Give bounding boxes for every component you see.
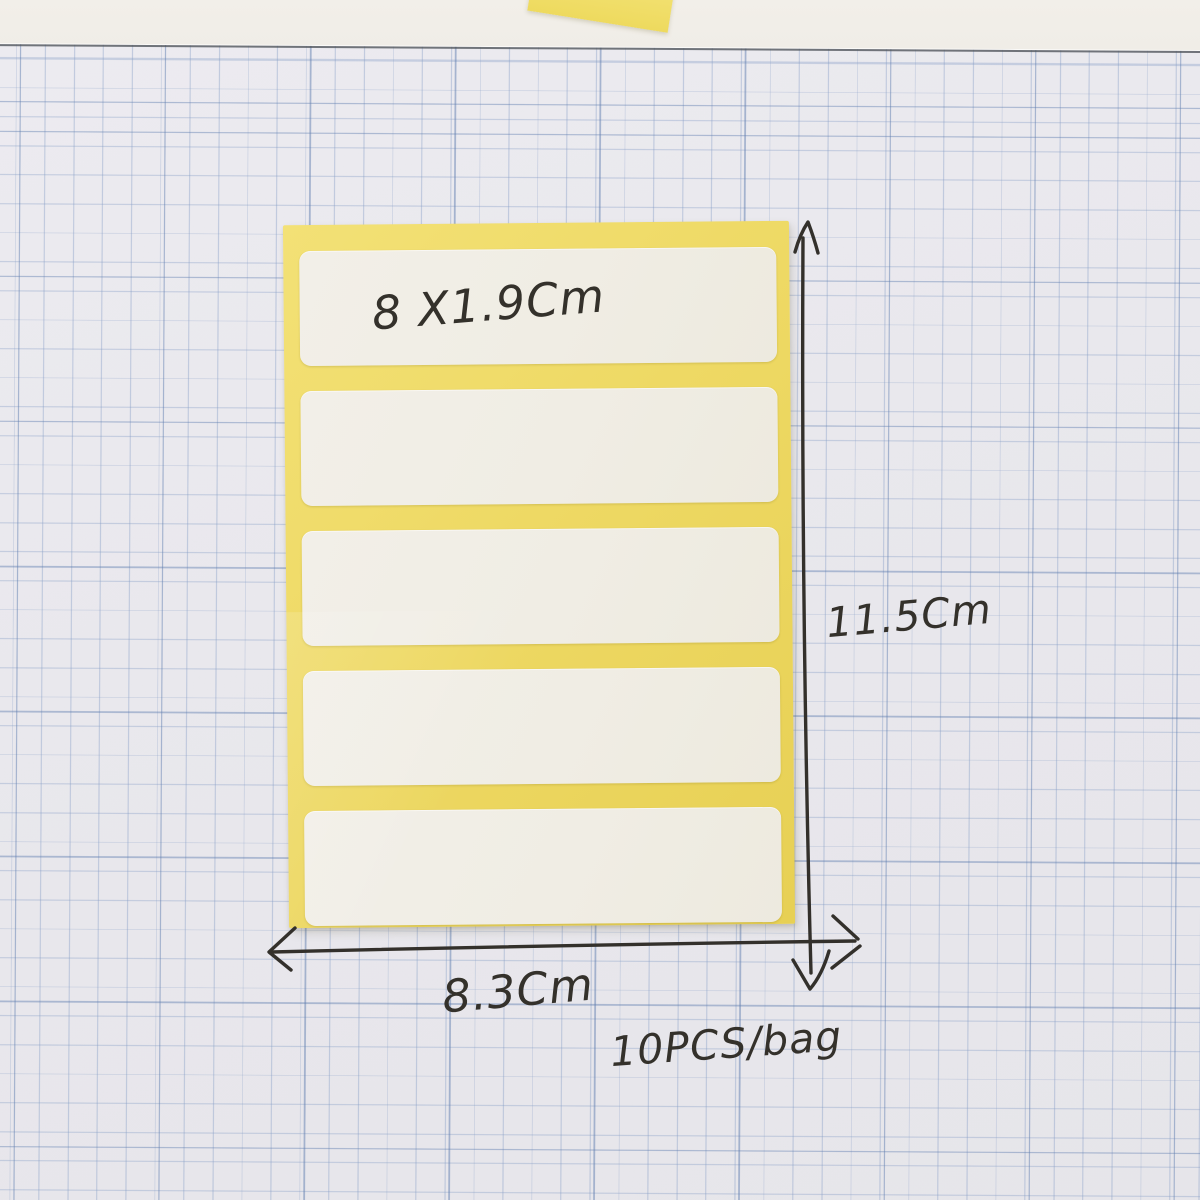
sticker-label: 8 X1.9Cm <box>299 247 777 366</box>
product-photo: 8 X1.9Cm 11.5Cm 8.3Cm 10PCS/bag <box>0 0 1200 1200</box>
sticker-label <box>300 387 778 506</box>
sticker-sheet: 8 X1.9Cm <box>283 221 795 928</box>
sticker-label <box>303 667 781 786</box>
sticker-label <box>302 527 780 646</box>
sticker-label <box>304 807 782 926</box>
handwritten-label-size: 8 X1.9Cm <box>370 268 607 340</box>
